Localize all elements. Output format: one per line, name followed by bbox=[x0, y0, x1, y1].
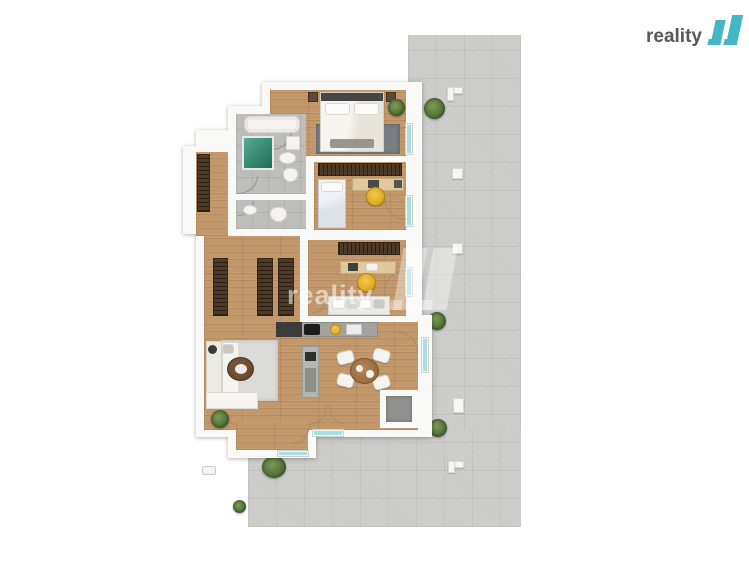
floor-lamp-icon bbox=[208, 345, 217, 354]
glass-door-icon bbox=[406, 196, 412, 226]
blanket-fold bbox=[330, 139, 374, 148]
reality11-logo: reality bbox=[646, 14, 746, 50]
glass-window-icon bbox=[278, 451, 308, 456]
coffee-table-icon bbox=[227, 357, 254, 381]
floor-plan-image: reality reality bbox=[0, 0, 749, 562]
wardrobe-icon bbox=[257, 258, 273, 316]
glass-door-icon bbox=[313, 430, 343, 436]
washbasin-icon bbox=[243, 205, 257, 215]
pillow bbox=[354, 103, 379, 115]
laptop-icon bbox=[348, 263, 358, 271]
ac-unit-icon bbox=[202, 466, 216, 475]
bathtub-icon bbox=[244, 116, 300, 133]
glass-door-icon bbox=[406, 124, 412, 154]
desk-item bbox=[394, 180, 402, 188]
plate bbox=[356, 365, 363, 372]
kitchen-cabinet-dark bbox=[276, 322, 302, 337]
wardrobe-icon bbox=[338, 242, 400, 255]
plate bbox=[366, 370, 374, 378]
pillow bbox=[321, 182, 343, 192]
glass-door-icon bbox=[422, 338, 428, 372]
storage-floor bbox=[386, 396, 412, 422]
sink-icon bbox=[346, 324, 362, 335]
fruit-bowl-icon bbox=[330, 324, 341, 335]
table-decor bbox=[235, 364, 247, 374]
logo-text: reality bbox=[646, 27, 702, 46]
washing-machine-icon bbox=[286, 136, 300, 150]
island-item bbox=[305, 368, 316, 392]
watermark-11-mark bbox=[419, 300, 433, 310]
watermark-text: reality bbox=[287, 280, 374, 311]
logo-11-mark bbox=[708, 14, 746, 50]
pillow bbox=[325, 103, 350, 115]
shower-icon bbox=[242, 136, 274, 170]
island-item bbox=[305, 352, 316, 361]
headboard bbox=[321, 93, 383, 101]
double-bed-icon bbox=[320, 92, 384, 152]
kitchen-island-icon bbox=[302, 346, 319, 398]
desk-item bbox=[366, 263, 378, 271]
wardrobe-icon bbox=[318, 163, 402, 176]
cooktop-icon bbox=[304, 324, 320, 335]
nightstand-icon bbox=[308, 92, 318, 102]
single-bed-icon bbox=[318, 179, 346, 228]
corner-sofa-icon bbox=[206, 392, 258, 409]
wardrobe-icon bbox=[213, 258, 228, 316]
plant-icon bbox=[211, 410, 229, 428]
plant-icon bbox=[388, 99, 405, 116]
washbasin-icon bbox=[279, 152, 296, 164]
watermark-11-mark bbox=[389, 300, 403, 310]
pillow bbox=[373, 299, 385, 309]
dining-table-icon bbox=[350, 358, 379, 384]
desk-chair-icon bbox=[366, 187, 385, 206]
wardrobe-icon bbox=[197, 154, 210, 212]
pillow bbox=[222, 344, 234, 354]
